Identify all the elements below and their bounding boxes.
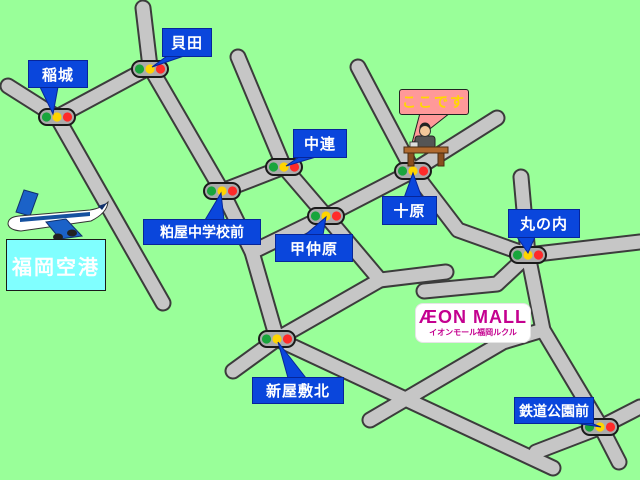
signal-label-jubaru: 十原 [382, 196, 437, 225]
traffic-signal-icon [259, 331, 295, 347]
signal-label-tetsudo-koen-mae: 鉄道公園前 [514, 397, 594, 424]
signal-label-nakatsure: 中連 [293, 129, 347, 158]
aeon-mall-logo: ÆON MALL イオンモール福岡ルクル [415, 303, 531, 343]
airplane-icon [8, 190, 108, 241]
signal-label-inagi: 稲城 [28, 60, 88, 88]
destination-callout: ここです [399, 89, 469, 115]
signal-label-kaida: 貝田 [162, 28, 212, 57]
access-map: 稲城 貝田 粕屋中学校前 中連 甲仲原 十原 丸の内 新屋敷北 鉄道公園前 ここ… [0, 0, 640, 480]
aeon-mall-logo-text: ÆON MALL [419, 308, 527, 328]
airport-label: 福岡空港 [6, 239, 106, 291]
signal-label-marunouchi: 丸の内 [508, 209, 580, 238]
signal-label-shinyashiki-kita: 新屋敷北 [252, 377, 344, 404]
traffic-signal-icon [39, 109, 75, 125]
traffic-signal-icon [204, 183, 240, 199]
signal-label-kasuya-junior-high: 粕屋中学校前 [143, 219, 261, 245]
traffic-signal-icon [308, 208, 344, 224]
aeon-mall-subtitle: イオンモール福岡ルクル [429, 327, 517, 338]
signal-label-ko-nakabaru: 甲仲原 [275, 234, 353, 262]
